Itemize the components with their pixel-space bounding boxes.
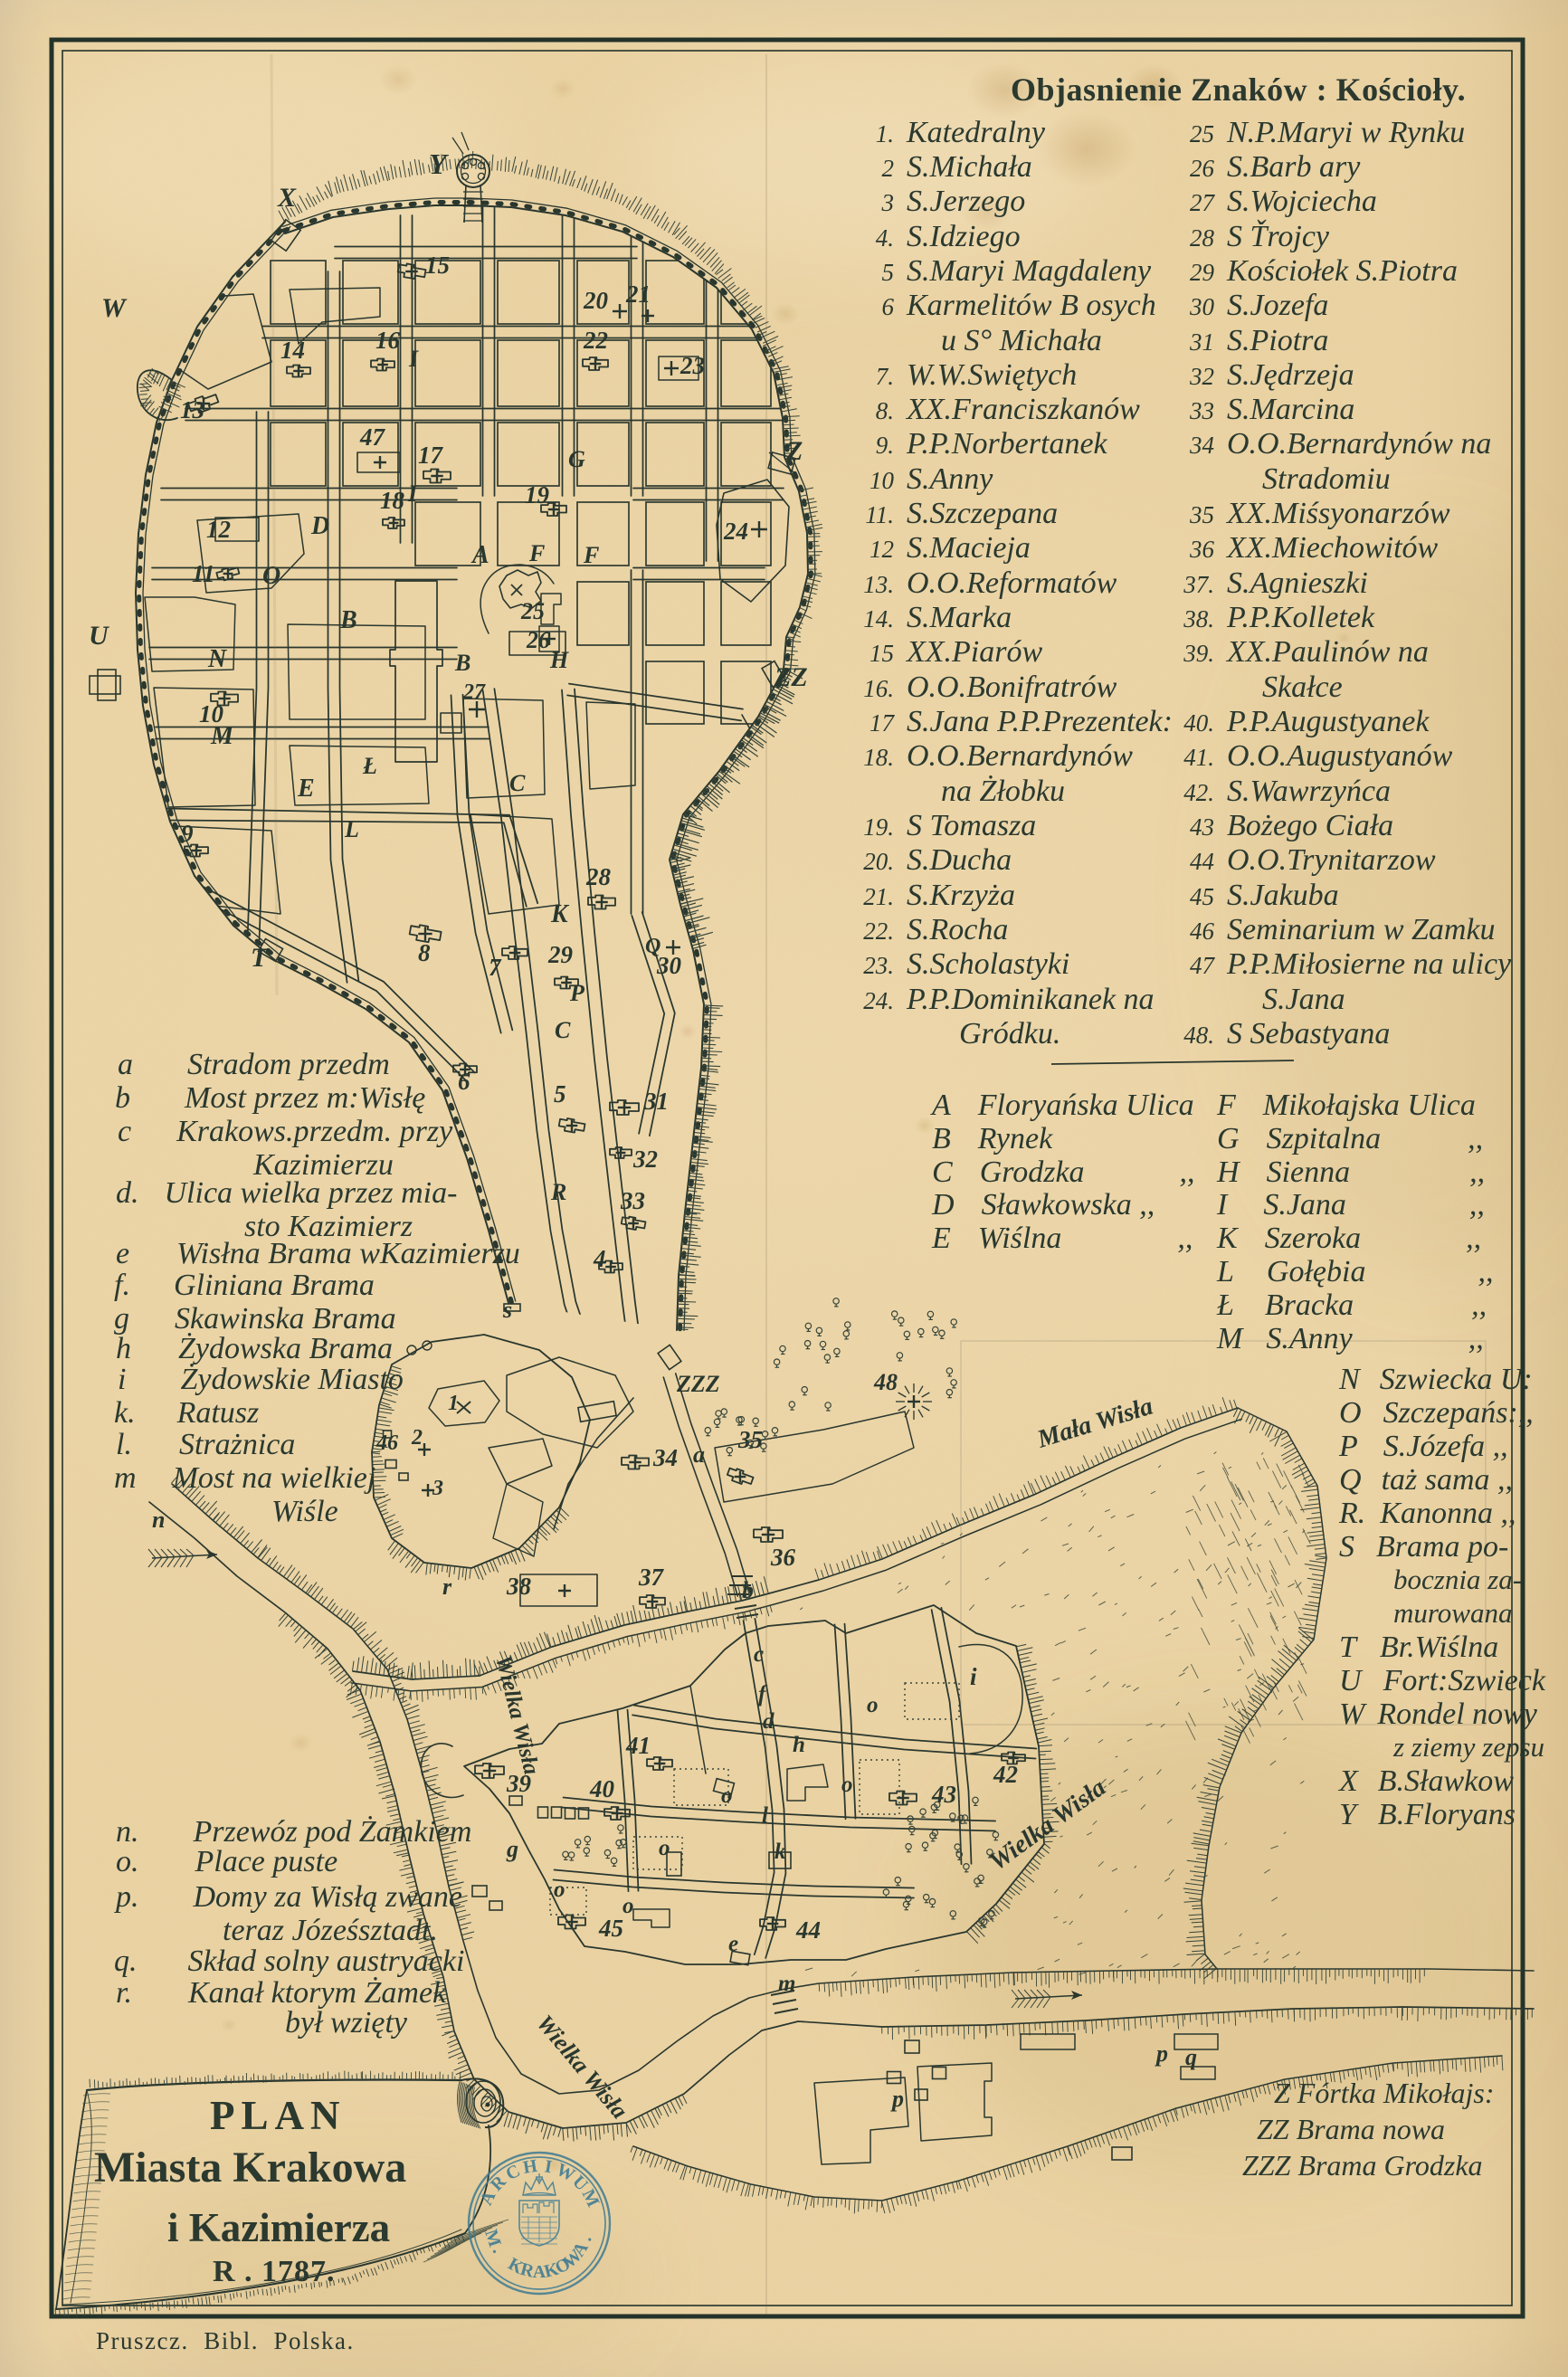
svg-text:40: 40 [589, 1775, 615, 1802]
svg-text:P: P [569, 980, 585, 1006]
svg-text:18: 18 [380, 487, 405, 514]
svg-text:T: T [251, 943, 269, 973]
svg-text:I: I [407, 480, 418, 507]
svg-text:41: 41 [625, 1732, 651, 1759]
svg-text:W: W [101, 293, 128, 323]
svg-text:46: 46 [375, 1431, 398, 1455]
svg-text:47: 47 [359, 423, 386, 451]
svg-text:23: 23 [679, 352, 705, 379]
svg-text:O: O [262, 562, 280, 590]
svg-text:d: d [763, 1709, 774, 1734]
svg-text:q: q [1185, 2044, 1197, 2070]
svg-text:17: 17 [418, 442, 444, 469]
svg-text:o: o [659, 1836, 670, 1860]
svg-text:2: 2 [411, 1426, 423, 1450]
svg-text:i: i [970, 1663, 977, 1690]
svg-text:o: o [867, 1693, 879, 1717]
svg-text:H: H [549, 647, 569, 673]
svg-text:c: c [754, 1642, 764, 1667]
svg-text:N: N [207, 645, 228, 673]
svg-text:E: E [297, 775, 315, 803]
svg-text:D: D [310, 512, 329, 540]
svg-text:Z: Z [785, 436, 803, 466]
svg-text:Q: Q [645, 935, 660, 958]
svg-text:24: 24 [723, 518, 748, 545]
svg-text:Ł: Ł [362, 753, 377, 779]
svg-text:27: 27 [462, 680, 486, 704]
svg-text:G: G [568, 446, 585, 472]
svg-text:20: 20 [583, 287, 609, 314]
svg-text:44: 44 [795, 1916, 821, 1944]
svg-text:ZZ: ZZ [774, 662, 808, 692]
svg-text:n: n [152, 1507, 165, 1533]
svg-text:45: 45 [598, 1915, 623, 1942]
svg-text:37: 37 [638, 1564, 665, 1591]
svg-text:A: A [470, 541, 489, 569]
svg-text:3: 3 [432, 1477, 443, 1500]
svg-text:28: 28 [585, 863, 612, 890]
svg-text:11: 11 [192, 560, 215, 587]
svg-text:12: 12 [206, 516, 231, 543]
svg-text:r: r [442, 1574, 452, 1600]
svg-text:6: 6 [458, 1068, 470, 1095]
svg-text:38: 38 [506, 1573, 532, 1600]
svg-text:p: p [890, 2086, 904, 2112]
svg-text:e: e [728, 1932, 738, 1956]
svg-text:14: 14 [280, 337, 305, 364]
svg-text:B: B [454, 650, 470, 676]
svg-text:42: 42 [993, 1761, 1018, 1788]
svg-text:4: 4 [593, 1245, 606, 1272]
svg-text:C: C [555, 1017, 571, 1043]
svg-text:25: 25 [520, 598, 545, 624]
svg-text:F: F [528, 540, 545, 566]
svg-text:o: o [622, 1894, 634, 1918]
svg-text:34: 34 [652, 1444, 678, 1471]
svg-text:o: o [841, 1773, 853, 1797]
svg-text:22: 22 [583, 327, 608, 354]
svg-text:29: 29 [547, 941, 574, 968]
svg-text:o: o [554, 1878, 565, 1902]
svg-text:C: C [509, 770, 526, 796]
svg-text:13: 13 [180, 396, 204, 423]
svg-text:s: s [502, 1297, 512, 1323]
svg-text:19: 19 [525, 481, 550, 509]
svg-text:31: 31 [643, 1088, 669, 1115]
svg-text:1: 1 [448, 1392, 459, 1415]
svg-text:8: 8 [418, 939, 431, 966]
svg-text:a: a [693, 1441, 705, 1468]
svg-text:39: 39 [506, 1770, 532, 1797]
svg-text:48: 48 [873, 1369, 898, 1395]
svg-text:h: h [793, 1733, 805, 1757]
svg-text:26: 26 [526, 627, 550, 653]
svg-text:K: K [550, 900, 570, 928]
svg-text:5: 5 [554, 1080, 566, 1108]
svg-text:33: 33 [620, 1187, 645, 1214]
svg-text:M: M [210, 722, 234, 750]
svg-text:I: I [408, 346, 419, 372]
svg-text:ZZZ: ZZZ [676, 1371, 720, 1397]
svg-text:R: R [550, 1179, 566, 1205]
svg-text:7: 7 [489, 954, 502, 981]
svg-text:F: F [583, 542, 599, 568]
svg-text:L: L [344, 816, 359, 842]
svg-text:21: 21 [625, 280, 651, 308]
svg-text:32: 32 [632, 1146, 658, 1173]
svg-text:o: o [721, 1783, 733, 1808]
svg-text:36: 36 [770, 1544, 796, 1571]
svg-text:15: 15 [425, 252, 450, 279]
svg-text:p: p [1155, 2040, 1168, 2067]
svg-text:m: m [778, 1972, 795, 1996]
svg-text:B: B [339, 606, 357, 634]
svg-text:U: U [89, 621, 109, 651]
svg-text:16: 16 [375, 327, 401, 354]
svg-text:Y: Y [429, 147, 449, 180]
svg-text:g: g [506, 1836, 518, 1862]
svg-text:X: X [277, 183, 297, 213]
svg-text:9: 9 [181, 820, 194, 847]
